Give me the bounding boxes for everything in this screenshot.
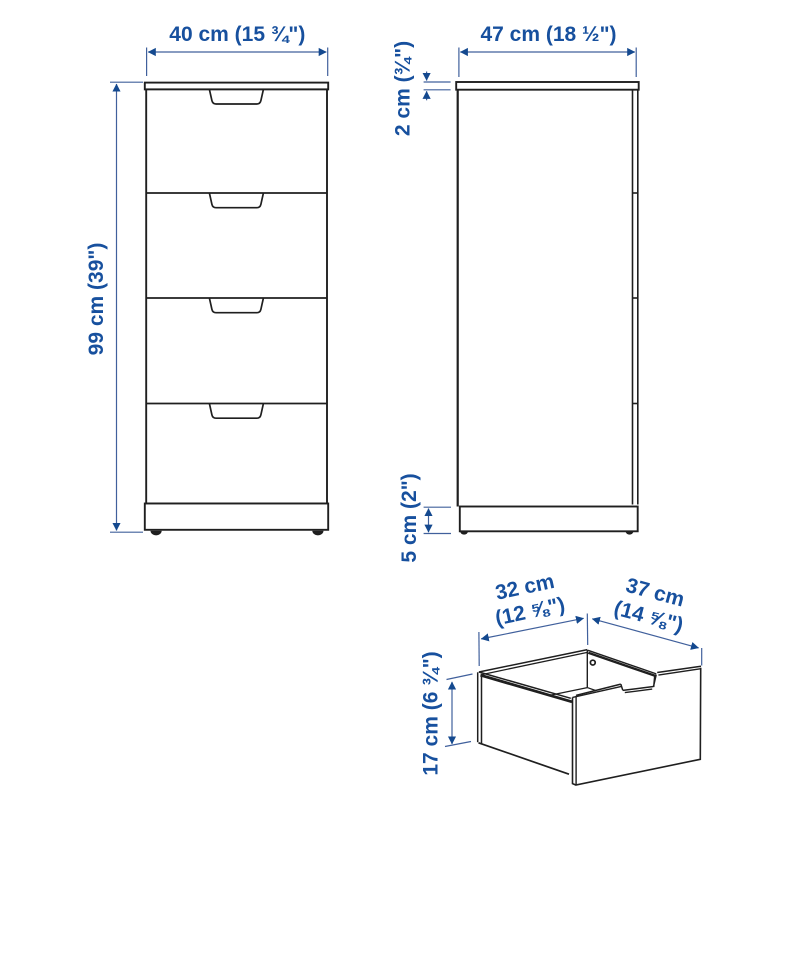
svg-text:17 cm (6 ¾"): 17 cm (6 ¾") bbox=[420, 651, 443, 775]
svg-text:5 cm (2"): 5 cm (2") bbox=[398, 473, 421, 562]
svg-text:2 cm (¾"): 2 cm (¾") bbox=[392, 41, 415, 136]
svg-text:99 cm (39"): 99 cm (39") bbox=[85, 243, 108, 356]
svg-text:47 cm (18 ½"): 47 cm (18 ½") bbox=[480, 23, 616, 46]
svg-text:40 cm (15 ¾"): 40 cm (15 ¾") bbox=[169, 23, 305, 46]
